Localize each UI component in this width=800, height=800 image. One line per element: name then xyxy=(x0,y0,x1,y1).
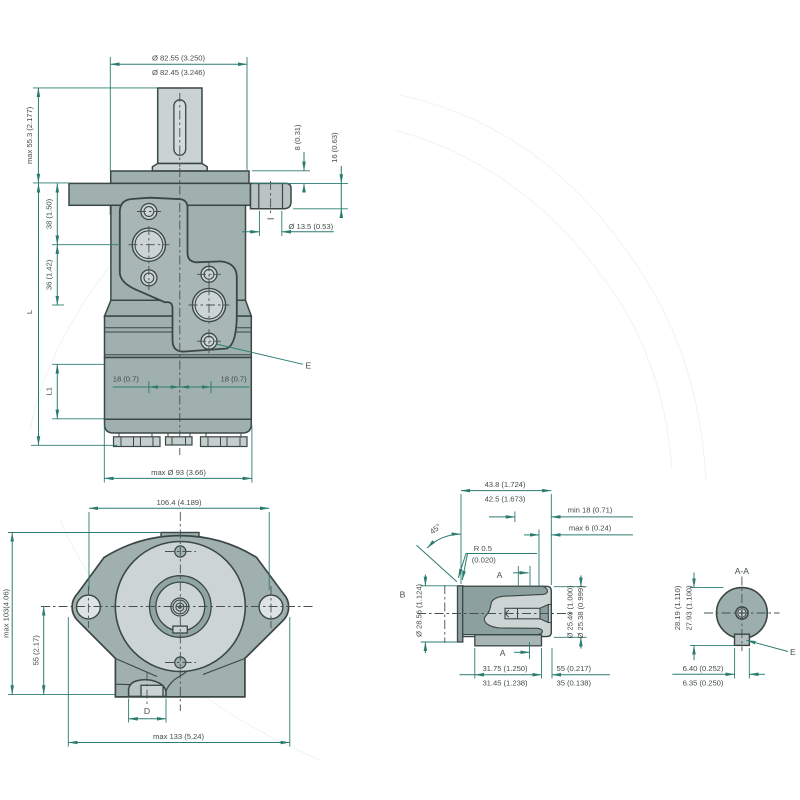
svg-text:31.75 (1.250): 31.75 (1.250) xyxy=(482,664,528,673)
svg-text:max 103(4.06): max 103(4.06) xyxy=(2,588,11,637)
svg-text:6.35 (0.250): 6.35 (0.250) xyxy=(683,678,724,687)
svg-text:16 (0.63): 16 (0.63) xyxy=(330,132,339,163)
svg-text:A: A xyxy=(500,648,506,658)
svg-text:36 (1.42): 36 (1.42) xyxy=(44,259,53,290)
svg-text:106.4 (4.189): 106.4 (4.189) xyxy=(156,498,202,507)
svg-text:Ø 13.5 (0.53): Ø 13.5 (0.53) xyxy=(289,222,334,231)
svg-text:8 (0.31): 8 (0.31) xyxy=(293,124,302,151)
svg-text:A: A xyxy=(497,570,503,580)
svg-text:Ø 82.45 (3.246): Ø 82.45 (3.246) xyxy=(152,68,206,77)
svg-text:max Ø 93 (3.66): max Ø 93 (3.66) xyxy=(151,468,206,477)
svg-text:L: L xyxy=(25,309,34,314)
svg-text:max 55.3 (2.177): max 55.3 (2.177) xyxy=(25,106,34,164)
svg-text:B: B xyxy=(400,590,406,600)
svg-text:max 133 (5.24): max 133 (5.24) xyxy=(153,732,204,741)
svg-text:R 0.5: R 0.5 xyxy=(474,544,492,553)
svg-text:18 (0.7): 18 (0.7) xyxy=(221,375,248,384)
svg-text:E: E xyxy=(306,360,312,370)
svg-text:35 (0.138): 35 (0.138) xyxy=(557,679,592,688)
svg-text:38 (1.50): 38 (1.50) xyxy=(44,198,53,229)
svg-text:43.8 (1.724): 43.8 (1.724) xyxy=(485,480,526,489)
svg-text:31.45 (1.238): 31.45 (1.238) xyxy=(482,679,528,688)
svg-text:55 (0.217): 55 (0.217) xyxy=(557,664,592,673)
svg-text:max 6 (0.24): max 6 (0.24) xyxy=(569,523,612,532)
svg-text:Ø 28.56 (1.124): Ø 28.56 (1.124) xyxy=(414,583,423,637)
svg-text:6.40 (0.252): 6.40 (0.252) xyxy=(683,664,724,673)
svg-text:Ø 82.55 (3.250): Ø 82.55 (3.250) xyxy=(152,54,206,63)
svg-text:L1: L1 xyxy=(44,387,53,395)
svg-text:Ø 25.38 (0.999): Ø 25.38 (0.999) xyxy=(576,585,585,639)
svg-text:D: D xyxy=(144,706,150,716)
svg-text:28.19 (1.110): 28.19 (1.110) xyxy=(673,585,682,630)
svg-text:55 (2.17): 55 (2.17) xyxy=(32,635,41,666)
svg-text:E: E xyxy=(790,647,796,657)
svg-text:45°: 45° xyxy=(428,522,443,536)
svg-text:42.5 (1.673): 42.5 (1.673) xyxy=(485,495,526,504)
svg-text:27.93 (1.100): 27.93 (1.100) xyxy=(684,585,693,631)
svg-text:A-A: A-A xyxy=(735,566,749,576)
svg-text:(0.020): (0.020) xyxy=(472,555,496,564)
svg-text:Ø 25.40 (1.000): Ø 25.40 (1.000) xyxy=(565,585,574,639)
svg-text:min 18 (0.71): min 18 (0.71) xyxy=(568,505,613,514)
svg-text:18 (0.7): 18 (0.7) xyxy=(113,375,140,384)
